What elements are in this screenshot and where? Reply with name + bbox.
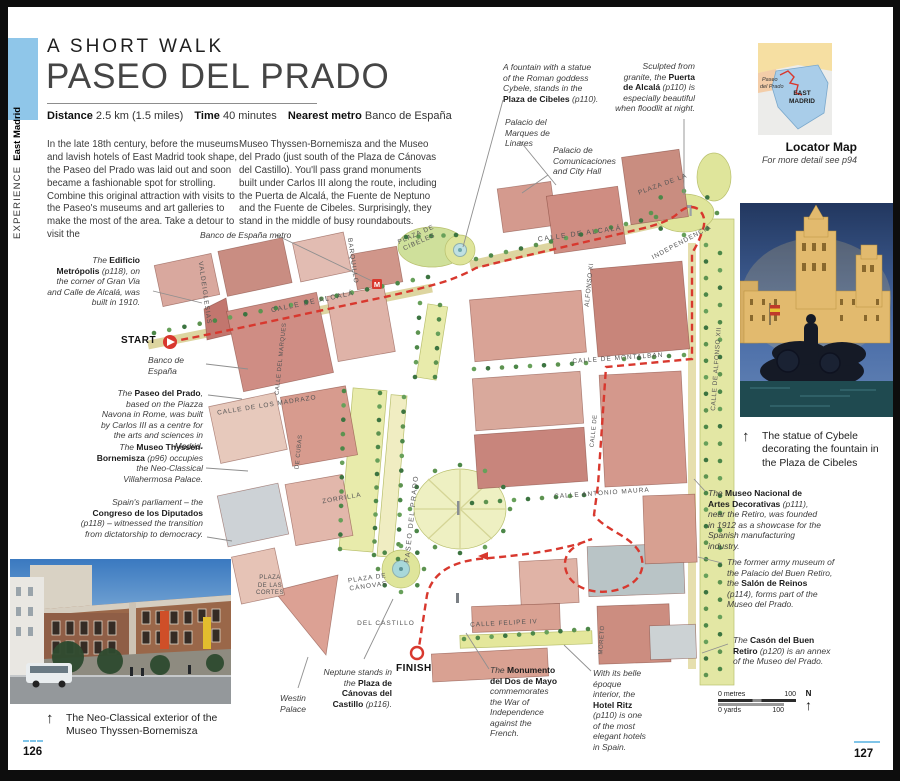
scale-yards-zero: 0 yards xyxy=(718,707,741,714)
book-page: M xyxy=(8,7,893,770)
map-scale-bar: 0 metres 100 0 yards 100 xyxy=(718,691,796,714)
route-finish-label: FINISH xyxy=(396,663,432,674)
route-start-label: START xyxy=(121,335,156,346)
scale-bar-yards xyxy=(718,703,784,706)
finish-marker xyxy=(411,647,423,659)
scale-yards-max: 100 xyxy=(772,707,784,714)
metro-icon: M xyxy=(372,279,382,289)
svg-text:M: M xyxy=(374,280,380,289)
illustrated-map: M xyxy=(8,7,893,770)
scale-metres-zero: 0 metres xyxy=(718,691,745,698)
scale-bar-metres xyxy=(718,699,796,702)
north-compass: N ↑ xyxy=(805,690,812,712)
north-arrow-icon: ↑ xyxy=(805,698,812,712)
scale-metres-max: 100 xyxy=(784,691,796,698)
